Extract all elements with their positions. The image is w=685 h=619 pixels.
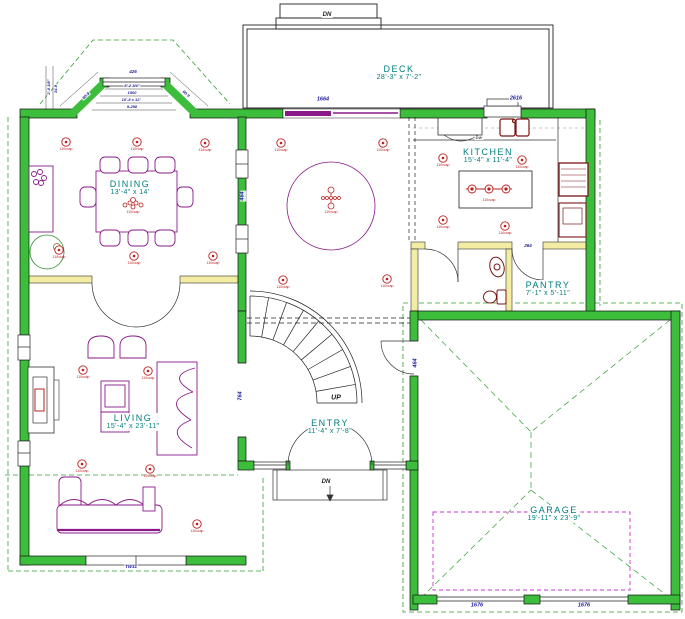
room-label-deck: DECK 28'-3" x 7'-2" <box>377 64 422 82</box>
floor-plan-drawing <box>0 0 685 619</box>
ceiling-light-icon <box>518 156 526 164</box>
room-dims: 13'-4" x 14' <box>110 189 151 197</box>
dim-label: 2'-0 3/8" <box>47 78 51 95</box>
ceiling-light-icon <box>78 460 86 468</box>
deck-outline <box>243 4 553 108</box>
ceiling-light-icon <box>79 366 87 374</box>
fixture-label: 110vcap <box>53 256 66 260</box>
fixture-label: 110vcap <box>77 376 90 380</box>
dim-label: 764 <box>238 390 244 401</box>
windows <box>18 78 521 565</box>
room-name: LIVING <box>107 413 160 423</box>
room-name: KITCHEN <box>463 147 513 157</box>
fixture-label: 110vcap <box>144 475 157 479</box>
nook-chandelier-icon <box>322 187 341 209</box>
fixture-label: 110vcap <box>207 262 220 266</box>
dim-label: 464 <box>240 190 246 201</box>
refrigerator-icon <box>559 163 588 196</box>
dining-furniture <box>29 157 193 246</box>
ceiling-light-icon <box>201 139 209 147</box>
ceiling-light-icon <box>279 276 287 284</box>
bath-fixtures <box>484 256 507 304</box>
room-label-entry: ENTRY 11'-4" x 7'-8" <box>308 418 352 436</box>
ceiling-light-icon <box>144 367 152 375</box>
wall-oven-icon <box>559 203 586 237</box>
curved-staircase <box>247 291 410 403</box>
dim-label: DN <box>321 479 332 485</box>
dim-label: 1676 <box>577 603 591 609</box>
ceiling-light-icon <box>55 246 63 254</box>
garage-hip-lines <box>421 320 670 598</box>
room-dims: 11'-4" x 7'-8" <box>308 428 352 436</box>
ceiling-light-icon <box>379 139 387 147</box>
ceiling-light-icon <box>146 465 154 473</box>
dim-label: 1500 <box>127 91 138 95</box>
dim-label: 426 <box>128 70 138 75</box>
room-label-kitchen: KITCHEN 15'-4" x 11'-4" <box>463 147 513 165</box>
dim-label: 10'-8 x 12' <box>121 98 142 102</box>
fixture-label: 110vcap <box>516 166 529 170</box>
ceiling-light-icon <box>62 138 70 146</box>
room-name: ENTRY <box>308 418 352 428</box>
ceiling-light-icon <box>439 154 447 162</box>
living-furniture <box>57 336 197 533</box>
room-name: DINING <box>110 179 151 189</box>
fixture-label: 110vcap <box>127 211 140 215</box>
fixture-label: 110vcap <box>76 470 89 474</box>
ceiling-light-icon <box>277 139 285 147</box>
dim-label: UP <box>330 395 342 402</box>
room-label-living: LIVING 15'-4" x 23'-11" <box>107 413 160 431</box>
room-label-pantry: PANTRY 7'-1" x 5'-11" <box>526 280 571 298</box>
ceiling-light-icon <box>383 275 391 283</box>
interior-walls <box>29 242 595 311</box>
room-dims: 7'-1" x 5'-11" <box>526 290 571 298</box>
room-dims: 19'-11" x 23'-9" <box>528 515 581 523</box>
room-label-dining: DINING 13'-4" x 14' <box>110 179 151 197</box>
fireplace-icon <box>28 367 59 433</box>
room-name: GARAGE <box>528 505 581 515</box>
ceiling-light-icon <box>439 216 447 224</box>
dim-label: DW <box>475 136 484 140</box>
fixture-label: 110vcap <box>275 149 288 153</box>
island-pendant-lights-icon <box>466 185 512 193</box>
fixture-label: 110vcap <box>483 199 496 203</box>
fixture-label: 110vcap <box>377 149 390 153</box>
room-dims: 15'-4" x 11'-4" <box>463 157 513 165</box>
fixture-label: 110vcap <box>325 211 338 215</box>
fixture-label: 110vcap <box>499 232 512 236</box>
room-label-garage: GARAGE 19'-11" x 23'-9" <box>528 505 581 523</box>
sliding-door <box>283 109 400 118</box>
room-dims: 28'-3" x 7'-2" <box>377 74 422 82</box>
fixture-label: 110vcap <box>277 286 290 290</box>
room-dims: 15'-4" x 23'-11" <box>107 423 160 431</box>
fixture-label: 110vcap <box>60 148 73 152</box>
fixture-label: 110vcap <box>437 226 450 230</box>
room-name: DECK <box>377 64 422 74</box>
dim-label: 2616 <box>509 96 523 102</box>
entry-stoop <box>273 470 387 501</box>
ceiling-light-icon <box>501 222 509 230</box>
garage-attic-outline <box>433 512 630 590</box>
ceiling-light-icon <box>209 252 217 260</box>
dim-label: 1676 <box>470 603 484 609</box>
dim-label: DN <box>322 12 333 18</box>
ceiling-light-icon <box>133 138 141 146</box>
dim-label: 264 <box>523 244 533 249</box>
dim-label: 464 <box>413 357 419 368</box>
dim-label: 1664 <box>316 97 330 103</box>
fixture-label: 110vcap <box>437 164 450 168</box>
dim-label: TW31 <box>124 565 138 570</box>
fixture-label: 110vcap <box>191 530 204 534</box>
room-name: PANTRY <box>526 280 571 290</box>
ceiling-light-icon <box>193 520 201 528</box>
fixture-label: 110vcap <box>128 262 141 266</box>
ceiling-light-icon <box>130 252 138 260</box>
fixture-label: 110vcap <box>199 149 212 153</box>
dim-label: 34-9 <box>54 84 58 94</box>
dim-label: 9-298 <box>126 105 138 109</box>
fixture-label: 110vcap <box>142 377 155 381</box>
fixture-label: 110vcap <box>381 285 394 289</box>
fixture-label: 110vcap <box>131 148 144 152</box>
floor-plan: DECK 28'-3" x 7'-2" KITCHEN 15'-4" x 11'… <box>0 0 685 619</box>
dim-label: 8'-2 3/4" <box>123 84 140 88</box>
